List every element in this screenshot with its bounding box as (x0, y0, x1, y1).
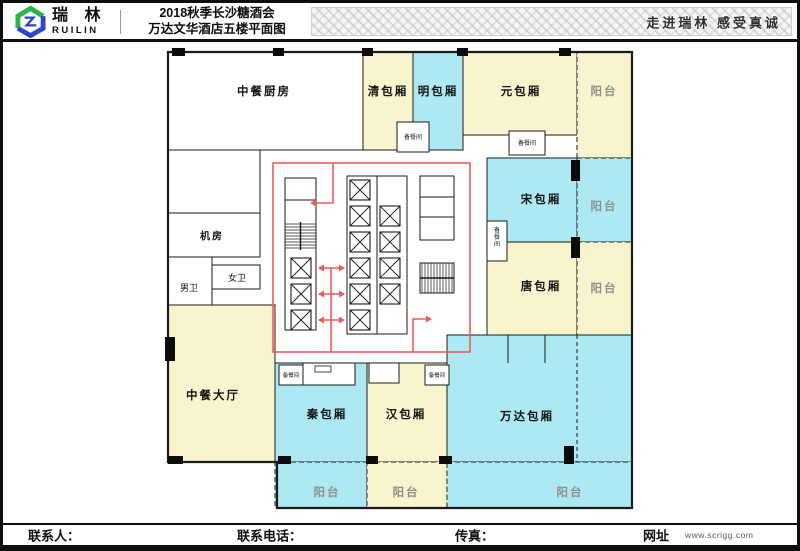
room-label-room-prep-5: 备餐间 (429, 371, 446, 379)
balcony-song (577, 158, 632, 242)
logo-name-cn: 瑞 林 (52, 8, 106, 24)
door-marker (172, 48, 185, 56)
room-label-room-han: 汉包厢 (386, 407, 427, 421)
room-label-room-qing: 清包厢 (368, 84, 409, 98)
door-marker (278, 456, 291, 464)
room-label-balcony-top-right: 阳台 (591, 84, 618, 98)
service-table (315, 366, 331, 372)
room-label-room-yuan: 元包厢 (501, 84, 542, 98)
balcony-qin (275, 462, 367, 508)
door-marker (168, 456, 183, 464)
room-nanwei (168, 257, 212, 305)
room-label-room-nuwei: 女卫 (228, 272, 246, 283)
door-marker (362, 48, 373, 56)
door-marker (564, 446, 574, 464)
logo-name-en: RUILIN (52, 26, 106, 36)
room-label-balcony-tang: 阳台 (591, 281, 618, 295)
header: 瑞 林 RUILIN 2018秋季长沙糖酒会 万达文华酒店五楼平面图 走进瑞林 … (3, 3, 797, 42)
room-kitchen-lower (168, 150, 260, 213)
door-marker (273, 48, 284, 56)
room-label-balcony-wanda: 阳台 (557, 485, 584, 499)
core-wall-box (285, 178, 316, 330)
room-label-room-hall: 中餐大厅 (186, 388, 240, 402)
room-label-room-song: 宋包厢 (520, 192, 562, 206)
floorplan-svg: 中餐厨房清包厢明包厢元包厢阳台宋包厢阳台唐包厢阳台万达包厢机房男卫女卫中餐大厅秦… (0, 0, 800, 551)
event-title: 2018秋季长沙糖酒会 (131, 5, 303, 21)
plan-title: 万达文华酒店五楼平面图 (131, 21, 303, 37)
room-label-room-prep-1: 备餐间 (404, 133, 422, 141)
room-label-room-tang: 唐包厢 (520, 279, 562, 293)
room-label-balcony-qin: 阳台 (314, 485, 341, 499)
ruilin-logo-icon (14, 5, 47, 38)
website-label: 网址 (643, 526, 669, 545)
balcony-wanda (447, 462, 632, 508)
room-label-room-prep-4: 备餐间 (283, 371, 300, 379)
room-label-room-prep-2: 备餐间 (518, 139, 536, 147)
contact-label: 联系人： (28, 526, 80, 545)
balcony-han (367, 462, 447, 508)
door-marker (559, 48, 571, 56)
room-hall (168, 305, 275, 462)
room-label-room-wanda: 万达包厢 (499, 409, 554, 423)
floorplan-area: 中餐厨房清包厢明包厢元包厢阳台宋包厢阳台唐包厢阳台万达包厢机房男卫女卫中餐大厅秦… (0, 0, 800, 551)
room-label-room-prep-3: 备餐间 (494, 226, 500, 248)
room-label-room-kitchen: 中餐厨房 (237, 84, 291, 98)
room-label-room-qin: 秦包厢 (306, 407, 348, 421)
door-marker (439, 456, 452, 464)
header-title: 2018秋季长沙糖酒会 万达文华酒店五楼平面图 (131, 5, 303, 37)
decorative-pattern-band: 走进瑞林 感受真诚 (311, 7, 792, 36)
door-marker (457, 48, 468, 56)
door-marker (571, 160, 580, 181)
slogan-text: 走进瑞林 感受真诚 (646, 12, 781, 31)
room-prep-3 (487, 221, 507, 261)
door-marker (165, 337, 175, 361)
room-service-nook-2 (369, 363, 399, 383)
door-marker (366, 456, 378, 464)
room-label-balcony-han: 阳台 (393, 485, 420, 499)
fax-label: 传真： (455, 526, 494, 545)
balcony-top-right (577, 52, 632, 158)
room-kitchen (168, 52, 363, 150)
room-label-room-ming: 明包厢 (418, 84, 459, 98)
page: 瑞 林 RUILIN 2018秋季长沙糖酒会 万达文华酒店五楼平面图 走进瑞林 … (0, 0, 800, 551)
room-wanda (447, 335, 632, 462)
phone-label: 联系电话： (237, 526, 302, 545)
footer: 联系人： 联系电话： 传真： 网址 www.scrigg.com (3, 523, 797, 545)
door-marker (571, 237, 580, 258)
room-label-room-jifang: 机房 (200, 230, 224, 243)
website-url: www.scrigg.com (685, 530, 753, 540)
room-label-room-nanwei: 男卫 (180, 283, 198, 293)
room-label-balcony-song: 阳台 (591, 199, 618, 213)
logo: 瑞 林 RUILIN (14, 5, 106, 38)
logo-text: 瑞 林 RUILIN (52, 8, 106, 36)
core-wall-box (420, 176, 454, 240)
header-divider (120, 10, 121, 34)
